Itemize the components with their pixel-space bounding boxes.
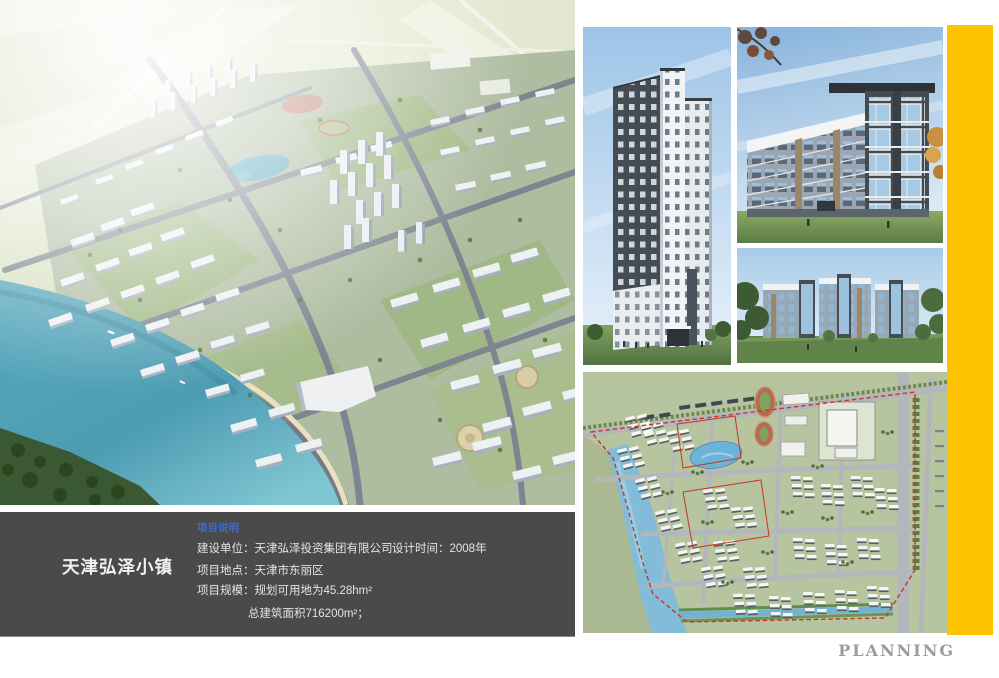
master-plan-image: [583, 372, 947, 633]
project-title: 天津弘泽小镇: [62, 554, 173, 579]
planning-watermark: PLANNING: [838, 641, 955, 660]
section-label: 项目说明: [197, 520, 239, 535]
building-rendering-mid-image: [737, 248, 943, 363]
info-row-builder: 建设单位：天津弘泽投资集团有限公司 设计时间：2008年: [197, 540, 393, 556]
info-row-floor-area: 总建筑面积716200m²；: [248, 605, 369, 621]
tower-rendering-image: [583, 27, 731, 365]
aerial-rendering-image: [0, 0, 575, 505]
master-plan-graphic: [583, 372, 947, 633]
building-rendering-top-image: [737, 27, 943, 243]
building-mid-graphic: [737, 248, 943, 363]
project-info-panel: 天津弘泽小镇 项目说明 建设单位：天津弘泽投资集团有限公司 设计时间：2008年…: [0, 512, 575, 637]
info-row-location: 项目地点：天津市东丽区: [197, 562, 324, 578]
accent-bar: [947, 25, 993, 635]
aerial-rendering-graphic: [0, 0, 575, 505]
info-row-scale: 项目规模：规划可用地为45.28hm²: [197, 582, 372, 598]
builder-text: 建设单位：天津弘泽投资集团有限公司: [197, 543, 393, 555]
building-top-graphic: [737, 27, 943, 243]
design-time-text: 设计时间：2008年: [392, 540, 487, 556]
tower-rendering-graphic: [583, 27, 731, 365]
presentation-board: 天津弘泽小镇 项目说明 建设单位：天津弘泽投资集团有限公司 设计时间：2008年…: [0, 0, 999, 678]
